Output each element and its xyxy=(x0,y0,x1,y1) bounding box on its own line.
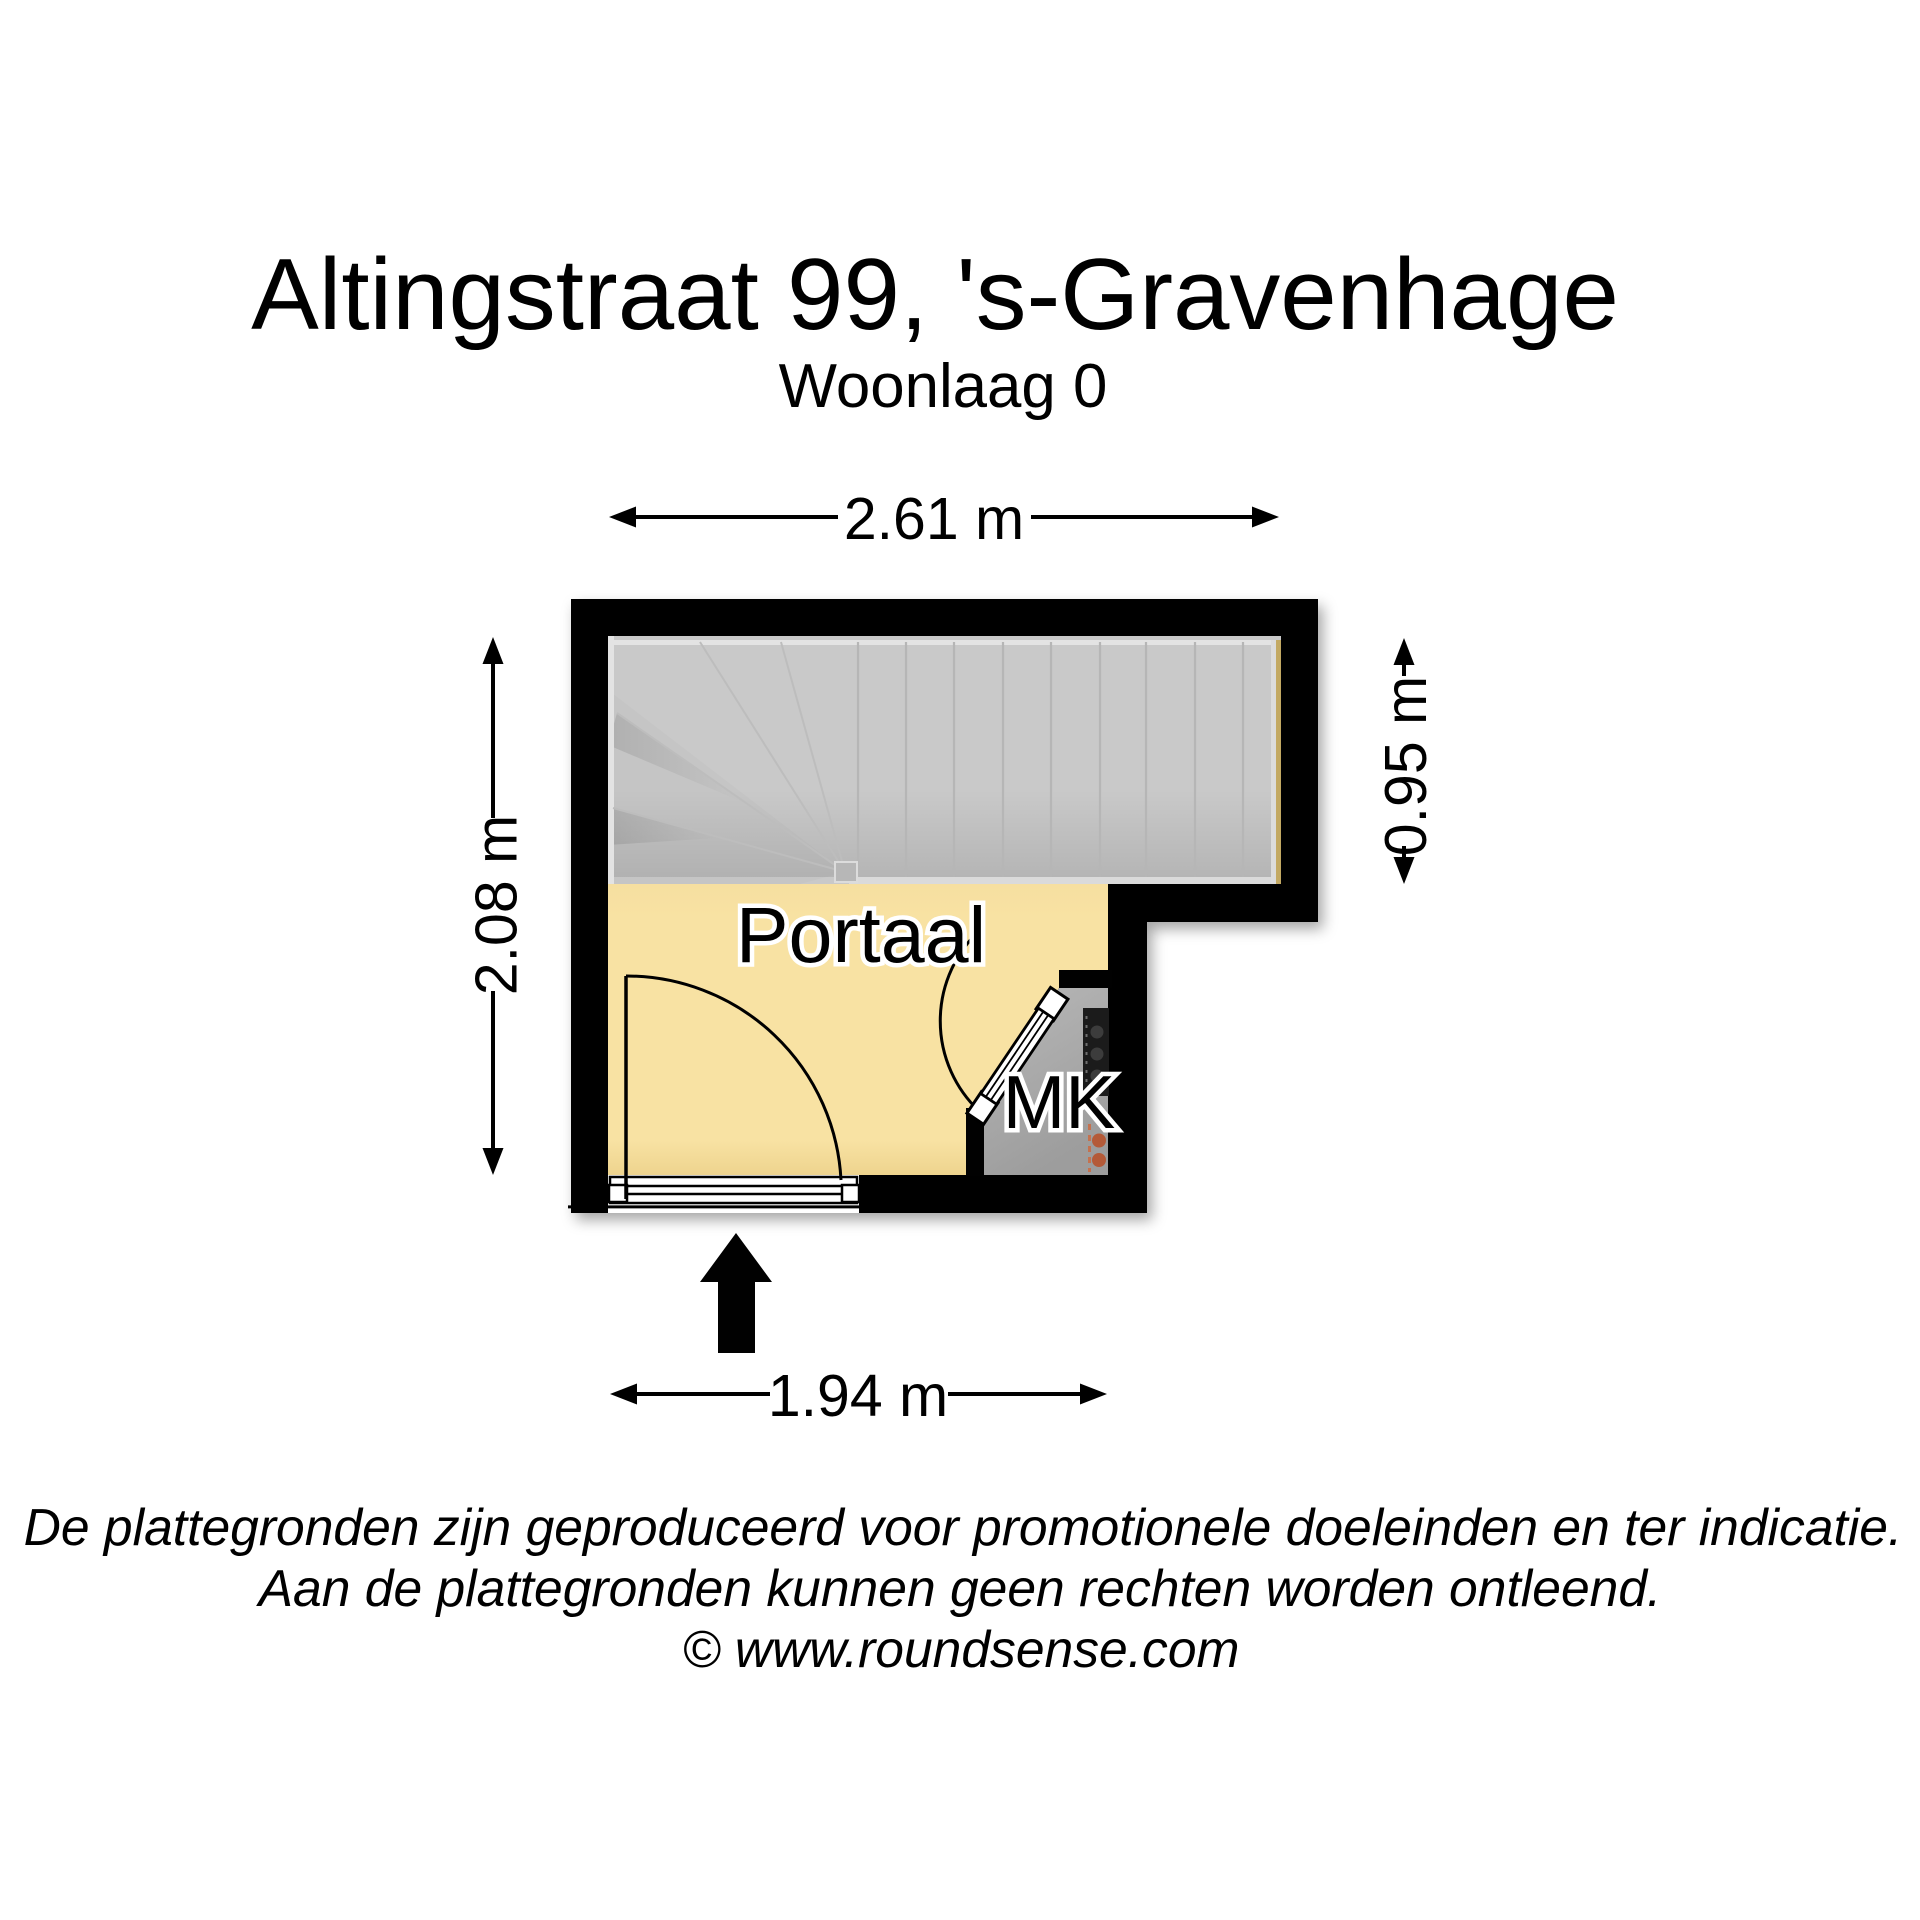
svg-text:1.94 m: 1.94 m xyxy=(768,1363,948,1429)
svg-text:© www.roundsense.com: © www.roundsense.com xyxy=(682,1620,1239,1678)
svg-text:2.61 m: 2.61 m xyxy=(844,486,1024,552)
svg-text:Aan de plattegronden kunnen ge: Aan de plattegronden kunnen geen rechten… xyxy=(256,1559,1662,1617)
svg-text:Woonlaag 0: Woonlaag 0 xyxy=(779,352,1108,421)
svg-text:Altingstraat 99, 's-Gravenhage: Altingstraat 99, 's-Gravenhage xyxy=(251,237,1619,351)
svg-text:0.95 m: 0.95 m xyxy=(1373,676,1439,856)
svg-text:2.08 m: 2.08 m xyxy=(464,815,530,995)
svg-text:Portaal: Portaal xyxy=(736,890,986,979)
svg-text:De plattegronden zijn geproduc: De plattegronden zijn geproduceerd voor … xyxy=(24,1498,1903,1556)
svg-text:MK: MK xyxy=(1003,1060,1116,1144)
